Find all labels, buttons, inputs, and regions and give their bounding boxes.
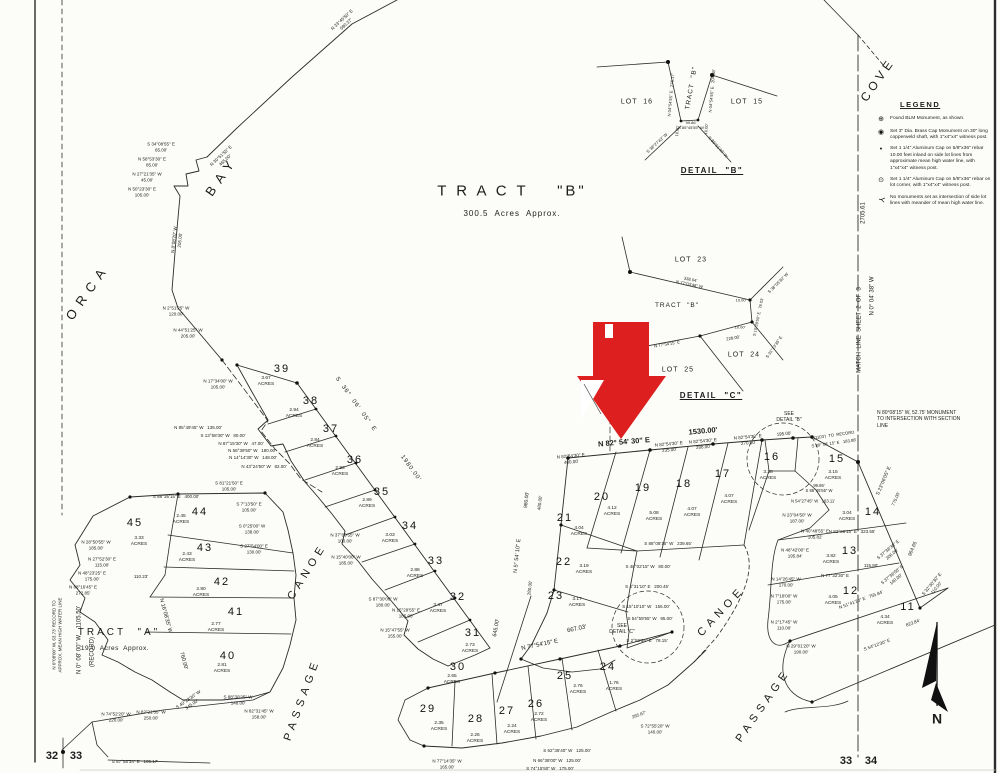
bearing-label: N 14°14'30" W 148.00' [229, 455, 277, 461]
bearing-label: N 82°21'35" W 250.00' [136, 709, 165, 720]
waterway-label-passage-east: PASSAGE [733, 667, 794, 746]
lot-acreage-37: 2.84 ACRES [307, 438, 324, 450]
bearing-label: N 50°23'30" E 105.00' [128, 186, 156, 197]
lot-number-15: 15 [829, 453, 845, 465]
bearing-label: N 15°47'55" W 155.00' [380, 627, 409, 638]
lot-number-14: 14 [865, 506, 881, 518]
bearing-label: N 14°26'45" W 170.00' [771, 576, 800, 587]
lot-number-45: 45 [127, 517, 143, 529]
lot-number-24: 24 [600, 661, 616, 673]
bearing-label: S 4°31'10" E 200.45' [625, 584, 669, 590]
bearing-label: 99.86' S 85°45'55" W [805, 483, 832, 494]
lot-acreage-39: 3.67 ACRES [258, 376, 275, 388]
legend-item: ◉Set 3" Dia. Brass Cap Monument on 30" l… [876, 129, 994, 142]
lot-acreage-21: 4.04 ACRES [571, 526, 588, 538]
lot-number-34: 34 [402, 520, 418, 532]
bearing-label: N 82°54'30" E 235.00' [655, 440, 684, 454]
lot-acreage-31: 2.73 ACRES [462, 643, 479, 655]
bearing-label: S 32°30'30" E 110.00' [921, 572, 947, 601]
lot-acreage-44: 2.45 ACRES [173, 514, 190, 526]
bearing-label: N 82°28'15" E 323.55' [829, 529, 875, 535]
bearing-label: S 10°29'50" E 78.03' [752, 298, 765, 337]
bearing-label: N 15°40'00" W 185.00' [331, 554, 360, 565]
bearing-label: S 31°13'35" E [764, 335, 783, 359]
bearing-label: N 66°38'00" W 125.00' [533, 758, 581, 764]
bearing-label: N 82°54'30" E 270.00' [734, 433, 763, 447]
north-arrow-letter: N [932, 710, 942, 728]
lot-number-36: 36 [347, 454, 363, 466]
lot-number-25: 25 [557, 670, 573, 682]
bearing-label: S 87°56'34" E 105.17' [112, 759, 158, 765]
bearing-label: N 17°34'00" W 105.00' [203, 378, 232, 389]
blm-monument-icon: ⊕ [876, 116, 886, 124]
lot-number-42: 42 [214, 576, 230, 588]
bearing-label: 760.00' [177, 651, 188, 670]
bearing-label: N 04°54'45" E 276.17' [667, 73, 676, 116]
see-detail-b-note: SEE DETAIL "B" [776, 411, 801, 424]
lot-number-21: 21 [557, 512, 573, 524]
detail-b-title: DETAIL "B" [681, 166, 743, 176]
detail-b-lot-15: LOT 15 [731, 99, 763, 108]
bearing-label: S 62°36'40" W 125.00' [543, 748, 590, 754]
lot-acreage-20: 4.12 ACRES [604, 506, 621, 518]
bearing-label: 480.00' [536, 495, 543, 510]
lot-number-18: 18 [676, 478, 692, 490]
match-line-label: MATCH LINE SHEET 2 OF 3 [856, 287, 864, 373]
monument-note: N 80°08'15" W, 52.75' MONUMENT TO INTERS… [877, 410, 960, 429]
tract-b-label: T R A C T "B" [437, 183, 587, 202]
lot-number-16: 16 [764, 451, 780, 463]
waterway-label-canoe-west: CANOE [285, 541, 331, 603]
detail-b-tract-label: TRACT "B" [684, 66, 700, 111]
bearing-label: N 54°27'45" W 163.11' [791, 498, 835, 503]
bearing-label: N 44°51'25" W 205.00' [173, 327, 202, 338]
bearing-label: N 88°16'45" E 272.85' [69, 584, 97, 595]
bearing-label: N 82°54'30" E 400.00' [557, 452, 586, 466]
bearing-label: S 13°58'30" W 80.00' [201, 433, 246, 439]
bearing-label: N 15°29'55" E 185.00' [392, 607, 420, 618]
bearing-label: 10.00' [735, 325, 746, 330]
lot-acreage-11: 4.34 ACRES [877, 615, 894, 627]
bearing-label: N 77°54'15" E [654, 339, 681, 349]
legend-item-text: No monuments set as intersection of side… [890, 195, 994, 208]
lot-number-13: 13 [842, 545, 858, 557]
bearing-label: N 85°51'40" W [707, 135, 729, 159]
legend: LEGEND ⊕Found BLM Monument, as shown.◉Se… [876, 100, 994, 212]
bearing-label: N 29°01'20" W 190.00' [786, 643, 815, 654]
lot-number-20: 20 [594, 491, 610, 503]
lot-number-27: 27 [499, 705, 515, 717]
bearing-label: S 88°30'25" W 148.00' [223, 694, 252, 705]
lot-acreage-19: 5.08 ACRES [646, 511, 663, 523]
bearing-label: S 54°59'55" W 95.00' [628, 616, 673, 622]
bearing-label: N 27°21'35" W 45.00' [132, 171, 161, 182]
detail-c-tract-label: TRACT "B" [655, 302, 699, 310]
lot-acreage-45: 3.33 ACRES [131, 536, 148, 548]
bearing-label: S 88°35'15" E 400.00' [153, 494, 199, 500]
lot-acreage-14: 3.04 ACRES [839, 511, 856, 523]
lot-number-11: 11 [900, 601, 915, 613]
lot-number-37: 37 [323, 423, 339, 435]
lot-acreage-28: 2.26 ACRES [467, 733, 484, 745]
waterway-label-orca: ORCA [63, 260, 114, 323]
bearing-label: N 82°54'30" E 288.00' [689, 437, 718, 451]
lot-number-22: 22 [556, 556, 572, 568]
bearing-label: N 28°50'55" W 185.00' [81, 539, 110, 550]
bearing-label: 645.00' [492, 619, 502, 638]
legend-item: ⊙Set 1 1/4" Aluminum Cap on 5/8"x36" reb… [876, 177, 994, 190]
lot-acreage-16: 3.38 ACRES [760, 470, 777, 482]
bearing-label: 228.00' [726, 334, 740, 342]
lot-acreage-15: 3.15 ACRES [825, 470, 842, 482]
west-boundary-bearing: N 0° 08' 00" W 1105.50' [76, 606, 84, 674]
lot-acreage-34: 3.03 ACRES [382, 533, 399, 545]
bearing-label: S 23°06'05" E [875, 466, 893, 497]
legend-item-text: Set 3" Dia. Brass Cap Monument on 30" lo… [890, 129, 994, 142]
bearing-label: S 87°30'00" W 180.00' [368, 596, 397, 607]
bearing-label: 775.00' [891, 491, 902, 507]
bearing-label: S 27°54'00" E 130.00' [240, 543, 268, 554]
lot-acreage-41: 2.77 ACRES [208, 622, 225, 634]
bearing-label: 964.65 [907, 541, 919, 558]
lot-acreage-30: 2.65 ACRES [444, 674, 461, 686]
see-detail-c-note: SEE DETAIL "C" [609, 623, 635, 636]
lot-acreage-25: 2.76 ACRES [570, 684, 587, 696]
section-corner-32: 32 [46, 750, 58, 764]
bearing-label: 115.80' [864, 563, 878, 569]
brass-cap-monument-icon: ◉ [876, 129, 886, 142]
bearing-label: S 38°05'30" W [767, 272, 790, 295]
lot-acreage-18: 4.07 ACRES [684, 507, 701, 519]
bearing-label: N 7°18'00" W 175.00' [771, 593, 798, 604]
bearing-label: N 04°54'45" E 204.88' [708, 69, 717, 112]
highlighted-bearing: N 82° 54' 30" E [598, 435, 651, 449]
bearing-label: S 15°10'10" W 155.00' [622, 604, 669, 610]
inland-rebar-icon: • [876, 146, 886, 172]
lot-acreage-35: 2.89 ACRES [359, 498, 376, 510]
detail-c-lot-25: LOT 25 [662, 367, 694, 376]
bearing-label: 823.84' [905, 618, 921, 628]
lot-acreage-33: 2.88 ACRES [407, 568, 424, 580]
lot-number-29: 29 [420, 703, 436, 715]
bearing-label: N 2°17'45" W 110.00' [771, 619, 798, 630]
lot-number-12: 12 [843, 585, 859, 597]
bearing-label: S 0°25'00" W 138.00' [239, 523, 266, 534]
legend-item-text: Set 1 1/4" Aluminum Cap on 5/8"x36" reba… [890, 146, 994, 172]
lot-number-19: 19 [635, 482, 651, 494]
bearing-label: S 54°12'30" E [863, 638, 891, 653]
bearing-label: N 37°00'55" W 100.00' [330, 532, 359, 543]
bearing-label: N 40°48'55" E 105.82' [801, 528, 829, 539]
legend-item-text: Set 1 1/4" Aluminum Cap on 5/8"x36" reba… [890, 177, 994, 190]
bearing-label: 667.03' [567, 624, 588, 635]
lot-acreage-17: 4.07 ACRES [721, 494, 738, 506]
lot-acreage-26: 2.72 ACRES [531, 712, 548, 724]
lot-number-44: 44 [192, 506, 208, 518]
bearing-label: N 8°08'20" W 205.00' [170, 226, 184, 254]
bearing-label: S 40°23'30" W 345.00' [175, 689, 205, 715]
legend-item: YNo monuments set as intersection of sid… [876, 195, 994, 208]
no-monument-icon: Y [876, 195, 886, 208]
bearing-label: N 48°23'25" E 175.00' [78, 570, 106, 581]
lot-number-41: 41 [228, 606, 244, 618]
lot-acreage-40: 2.81 ACRES [214, 663, 231, 675]
bearing-label: 980.00' [523, 492, 531, 509]
lot-acreage-27: 2.24 ACRES [504, 724, 521, 736]
bearing-label: 110.23' [134, 574, 148, 580]
lot-acreage-24: 1.76 ACRES [606, 681, 623, 693]
legend-item: •Set 1 1/4" Aluminum Cap on 5/8"x36" reb… [876, 146, 994, 172]
bearing-label: 280.00' [526, 580, 533, 595]
lot-acreage-22: 3.19 ACRES [576, 564, 593, 576]
bearing-label: S 74°15'50" W 175.00' [526, 766, 573, 772]
detail-c-lot-24: LOT 24 [728, 352, 760, 361]
bearing-label: S 81°21'50" E 105.00' [215, 480, 243, 491]
bearing-label: S 37°36'00" E 140.00' [880, 564, 909, 590]
map-labels-layer: ORCABAYCANOEPASSAGECANOEPASSAGECOVET R A… [0, 0, 1000, 773]
bearing-label: N 5° 54' 10" E [513, 539, 523, 574]
bearing-label: 99.86' S 85°45'55" W [678, 120, 704, 130]
lot-acreage-36: 2.83 ACRES [332, 466, 349, 478]
lot-number-26: 26 [528, 698, 544, 710]
tract-b-acreage: 300.5 Acres Approx. [463, 209, 560, 219]
detail-c-lot-23: LOT 23 [675, 257, 707, 266]
bearing-label: N 27°52'30" E 115.00' [88, 556, 116, 567]
bearing-label: N 2°51'25" W 120.00' [163, 305, 190, 316]
detail-b-lot-16: LOT 16 [621, 99, 653, 108]
section-corner-34: 34 [865, 755, 877, 769]
bearing-label: N 77°32'30" E [821, 573, 849, 579]
lot-number-33: 33 [428, 555, 444, 567]
bearing-label: S 38°27'43" W [645, 132, 668, 154]
lot-number-43: 43 [197, 542, 213, 554]
lot-number-35: 35 [374, 486, 390, 498]
lot-number-39: 39 [274, 363, 290, 375]
bearing-label: 338.04' N 77°03'48" W [676, 274, 705, 290]
bearing-label: N 77°54'15" E [521, 638, 559, 653]
highlighted-distance: 1530.00' [688, 425, 718, 437]
bearing-label: N 33°45'50" E 590.37' [330, 8, 358, 35]
bearing-label: S 34°08'55" E 65.00' [147, 141, 175, 152]
waterway-label-cove: COVE [858, 55, 899, 105]
bearing-label: S 2°59'35" E 78.15' [626, 638, 667, 644]
lot-acreage-23: 3.17 ACRES [569, 597, 586, 609]
plat-map-sheet: ORCABAYCANOEPASSAGECANOEPASSAGECOVET R A… [0, 0, 1000, 773]
bearing-label: S 48°02'15" W 80.00' [626, 564, 671, 570]
bearing-label: N 82°31'45" W 158.00' [244, 708, 273, 719]
bearing-label: 195.00' [776, 431, 791, 438]
bearing-label: N 58°39'50" W 180.00' [228, 448, 276, 454]
record-note: N 0°08'00" W, 63.73' RECORD TO APPROX. M… [51, 597, 62, 672]
detail-c-title: DETAIL "C" [680, 391, 742, 401]
legend-item-text: Found BLM Monument, as shown. [890, 116, 964, 124]
bearing-label: S 7°13'50" E 105.00' [236, 501, 261, 512]
bearing-label: N 87°15'30" W 47.00' [218, 441, 263, 447]
lot-number-32: 32 [450, 591, 466, 603]
section-corner-33-right: 33 [840, 755, 852, 769]
waterway-label-passage-west: PASSAGE [282, 657, 325, 743]
lot-number-30: 30 [450, 661, 466, 673]
lot-acreage-42: 2.80 ACRES [193, 587, 210, 599]
bearing-label: 1980.00' [398, 454, 422, 483]
bearing-label: N 48°42'00" E 195.84' [781, 547, 809, 558]
waterway-label-canoe-east: CANOE [695, 584, 749, 640]
lot-acreage-32: 3.47 ACRES [430, 603, 447, 615]
lot-acreage-13: 3.82 ACRES [823, 554, 840, 566]
lot-number-38: 38 [303, 395, 319, 407]
corner-rebar-icon: ⊙ [876, 177, 886, 190]
lot-number-28: 28 [468, 713, 484, 725]
match-line-distance: 2705.61 [860, 202, 868, 224]
bearing-label: 10.00' [736, 298, 747, 303]
lot-number-23: 23 [548, 590, 564, 602]
lot-number-40: 40 [220, 650, 236, 662]
match-line-bearing: N 0° 04' 38" W [869, 276, 877, 315]
legend-item: ⊕Found BLM Monument, as shown. [876, 116, 994, 124]
section-corner-33-left: 33 [70, 750, 82, 764]
bearing-label: N 58°53'30" E 85.00' [138, 156, 166, 167]
lot-acreage-38: 2.94 ACRES [286, 408, 303, 420]
bearing-label: N 85°49'45" W 135.00' [174, 425, 222, 431]
bearing-label: S 36° 06' 05" E [333, 376, 378, 434]
legend-title: LEGEND [900, 100, 994, 109]
lot-acreage-43: 2.43 ACRES [179, 552, 196, 564]
bearing-label: N 74°52'20" W 220.00' [101, 711, 130, 722]
legend-items: ⊕Found BLM Monument, as shown.◉Set 3" Di… [876, 116, 994, 207]
bearing-label: S 37°38'30" E 206.00' [876, 539, 905, 565]
bearing-label: 265.67' [631, 710, 647, 720]
lot-number-17: 17 [715, 468, 731, 480]
bearing-label: N 43°24'50" W 82.00' [241, 464, 286, 470]
lot-number-31: 31 [465, 627, 481, 639]
lot-acreage-29: 2.35 ACRES [431, 721, 448, 733]
bearing-label: N 23°04'50" W 187.00' [782, 512, 811, 523]
west-boundary-record: (RECORD) [89, 637, 97, 667]
bearing-label: S 88°08'15" W 239.65' [644, 541, 691, 547]
lot-acreage-12: 4.05 ACRES [825, 595, 842, 607]
bearing-label: N 77°14'35" W 165.00' [432, 758, 461, 769]
bearing-label: S 72°55'20" W 140.00' [640, 723, 669, 734]
